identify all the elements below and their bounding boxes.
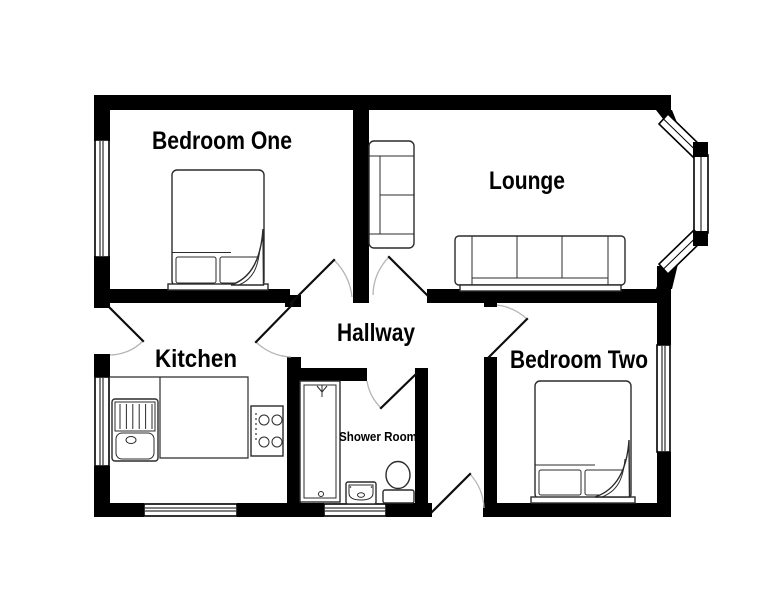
wall-bedroom2-east-b: [657, 452, 671, 517]
wall-segment-left-c: [94, 354, 110, 377]
window-shower-south: [324, 504, 386, 516]
wall-shower-north: [301, 368, 367, 381]
room-label-bedroom-one: Bedroom One: [152, 127, 292, 155]
window-kitchen-south: [144, 504, 237, 516]
wall-segment-bottom-b: [237, 503, 324, 517]
toilet-cistern: [383, 490, 414, 503]
floor-background: [0, 0, 768, 615]
bed-footboard: [531, 497, 635, 503]
room-label-bedroom-two: Bedroom Two: [510, 346, 648, 374]
double-bed: [531, 381, 635, 503]
room-label-hallway: Hallway: [337, 319, 415, 347]
room-hallway: Hallway: [337, 319, 415, 347]
bed-mattress: [172, 170, 264, 286]
sofa-two-seater: [369, 141, 414, 248]
floorplan-svg: Bedroom One Lounge Hallway: [0, 0, 768, 615]
kitchen-sink: [112, 399, 158, 461]
window-bedroom2-east: [657, 345, 670, 452]
wall-segment-top: [94, 95, 671, 110]
room-label-kitchen: Kitchen: [155, 345, 237, 373]
double-bed: [168, 170, 268, 290]
sofa-base: [460, 285, 621, 291]
window-bedroom1-west: [95, 140, 109, 257]
bay-window-corner-post-bottom: [693, 231, 708, 246]
wall-segment-bottom-d: [483, 503, 671, 517]
wall-bedroom2-west-stub: [484, 296, 497, 307]
toilet-bowl: [386, 462, 410, 489]
kitchen-hob: [251, 406, 283, 456]
wall-kitchen-shower-divider: [287, 357, 301, 517]
wall-segment-left-a: [94, 95, 110, 141]
wall-bedroom1-lounge-divider: [353, 110, 369, 303]
wall-bedroom1-south: [94, 289, 290, 303]
wash-basin: [346, 482, 376, 504]
room-label-lounge: Lounge: [489, 167, 565, 195]
room-label-shower-room: Shower Room: [339, 429, 417, 444]
wall-segment-bottom-a: [94, 503, 144, 517]
sofa-three-seater: [455, 236, 625, 291]
bay-window-corner-post-top: [693, 142, 708, 157]
wall-bedroom2-west: [484, 357, 497, 517]
window-kitchen-west: [95, 377, 109, 466]
shower-enclosure: [300, 381, 340, 502]
floorplan-page: Bedroom One Lounge Hallway: [0, 0, 768, 615]
